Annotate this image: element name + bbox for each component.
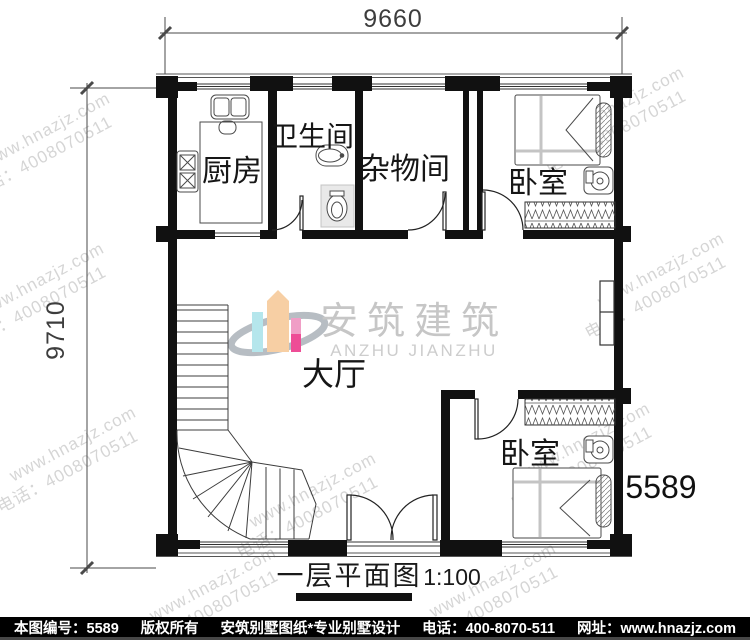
wardrobe — [525, 399, 615, 425]
plan-number: 5589 — [625, 469, 696, 505]
dimension-left-height: 9710 — [42, 300, 70, 360]
logo-text-cn: 安筑建筑 — [320, 301, 508, 343]
room-label-bedroom-bottom: 卧室 — [500, 438, 560, 471]
footer-phone: 电话：400-8070-511 — [422, 617, 555, 638]
logo-bar-cyan-icon — [252, 312, 263, 352]
pillow — [596, 103, 611, 157]
room-label-hall: 大厅 — [302, 356, 366, 392]
footer-sheet-no: 本图编号：5589 — [14, 617, 119, 638]
bathroom-fixtures — [316, 145, 354, 227]
title-underline — [296, 593, 412, 601]
drawing-scale: 1:100 — [423, 564, 481, 590]
footer-website: 网址：www.hnazjz.com — [577, 617, 736, 638]
room-label-bathroom: 卫生间 — [270, 121, 354, 152]
pillow — [596, 475, 611, 527]
room-label-bedroom-top: 卧室 — [508, 167, 568, 200]
bed — [513, 468, 601, 538]
kitchen-sink — [211, 95, 249, 119]
wardrobe — [525, 202, 615, 228]
hall-cabinet — [600, 281, 614, 345]
floor-plan-drawing: 安筑建筑 ANZHU JIANZHU 9660 9710 — [0, 0, 750, 640]
floor-plan-canvas: www.hnazjz.com电话：4008070511 www.hnazjz.c… — [0, 0, 750, 640]
bedroom-top-furniture — [515, 95, 615, 228]
company-logo: 安筑建筑 ANZHU JIANZHU — [228, 290, 508, 360]
room-label-kitchen: 厨房 — [202, 155, 262, 188]
logo-building-icon — [267, 290, 289, 352]
drawing-title: 一层平面图 — [277, 561, 422, 591]
room-label-storage: 杂物间 — [360, 153, 450, 186]
dimension-top-width: 9660 — [363, 5, 423, 33]
logo-bar-magenta-icon — [291, 334, 301, 352]
footer-info-bar: 本图编号：5589 版权所有 安筑别墅图纸*专业别墅设计 电话：400-8070… — [0, 617, 750, 637]
footer-copyright: 版权所有 — [141, 617, 199, 638]
toilet — [327, 195, 347, 221]
footer-brand: 安筑别墅图纸*专业别墅设计 — [221, 617, 401, 638]
